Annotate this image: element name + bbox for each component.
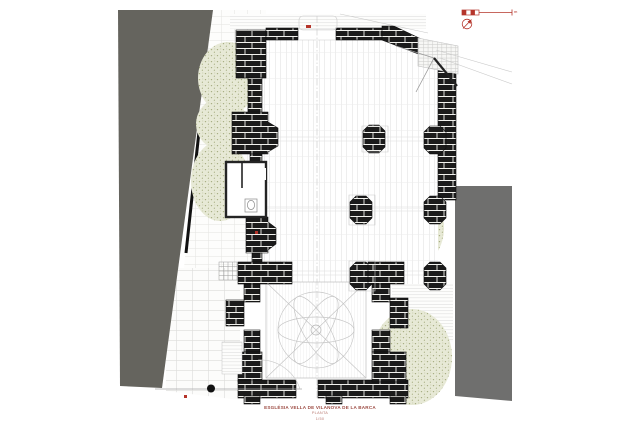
annex-door-gap <box>262 168 266 180</box>
pier-chapel-se <box>424 262 446 290</box>
steps <box>222 342 242 374</box>
drawing-scale: 1/50 <box>210 417 430 422</box>
buttress-south-1 <box>244 396 260 404</box>
wall-nw-corner <box>236 30 266 78</box>
neighbor-building-right <box>455 186 512 401</box>
plan-svg <box>0 0 640 426</box>
wall-presbytery-nw <box>238 262 292 284</box>
wall-south-right <box>318 380 408 398</box>
wall-presbytery-w2 <box>244 330 260 352</box>
pier-nave-1 <box>363 125 385 153</box>
scale-bar <box>462 10 512 16</box>
nave-floor <box>262 40 438 284</box>
wall-north-left <box>266 28 298 40</box>
red-marker-entrance <box>306 25 311 28</box>
annex-room <box>226 162 266 217</box>
wall-presbytery-ne <box>368 262 404 284</box>
tree-trunk-dot <box>207 385 215 393</box>
architectural-plan: ESGLÉSIA VELLA DE VILANOVA DE LA BARCA P… <box>0 0 640 426</box>
pier-chapel-ne <box>424 196 446 224</box>
wall-presbytery-se <box>372 352 406 382</box>
buttress-west <box>226 300 244 326</box>
buttress-south-3 <box>390 396 406 404</box>
wall-north-right <box>336 28 384 40</box>
buttress-east <box>390 298 408 328</box>
north-arrow-icon <box>462 19 472 29</box>
wall-presbytery-e2 <box>372 330 390 352</box>
pier-east-1 <box>424 126 446 154</box>
red-marker-plaza <box>184 395 187 398</box>
paving-plaza <box>166 268 240 400</box>
red-marker-west <box>255 231 258 234</box>
buttress-south-2 <box>326 396 342 404</box>
title-block: ESGLÉSIA VELLA DE VILANOVA DE LA BARCA P… <box>210 405 430 422</box>
scale-unit-label: m <box>514 9 517 14</box>
wall-presbytery-w1 <box>244 284 260 302</box>
pier-chapel-nw <box>350 196 372 224</box>
